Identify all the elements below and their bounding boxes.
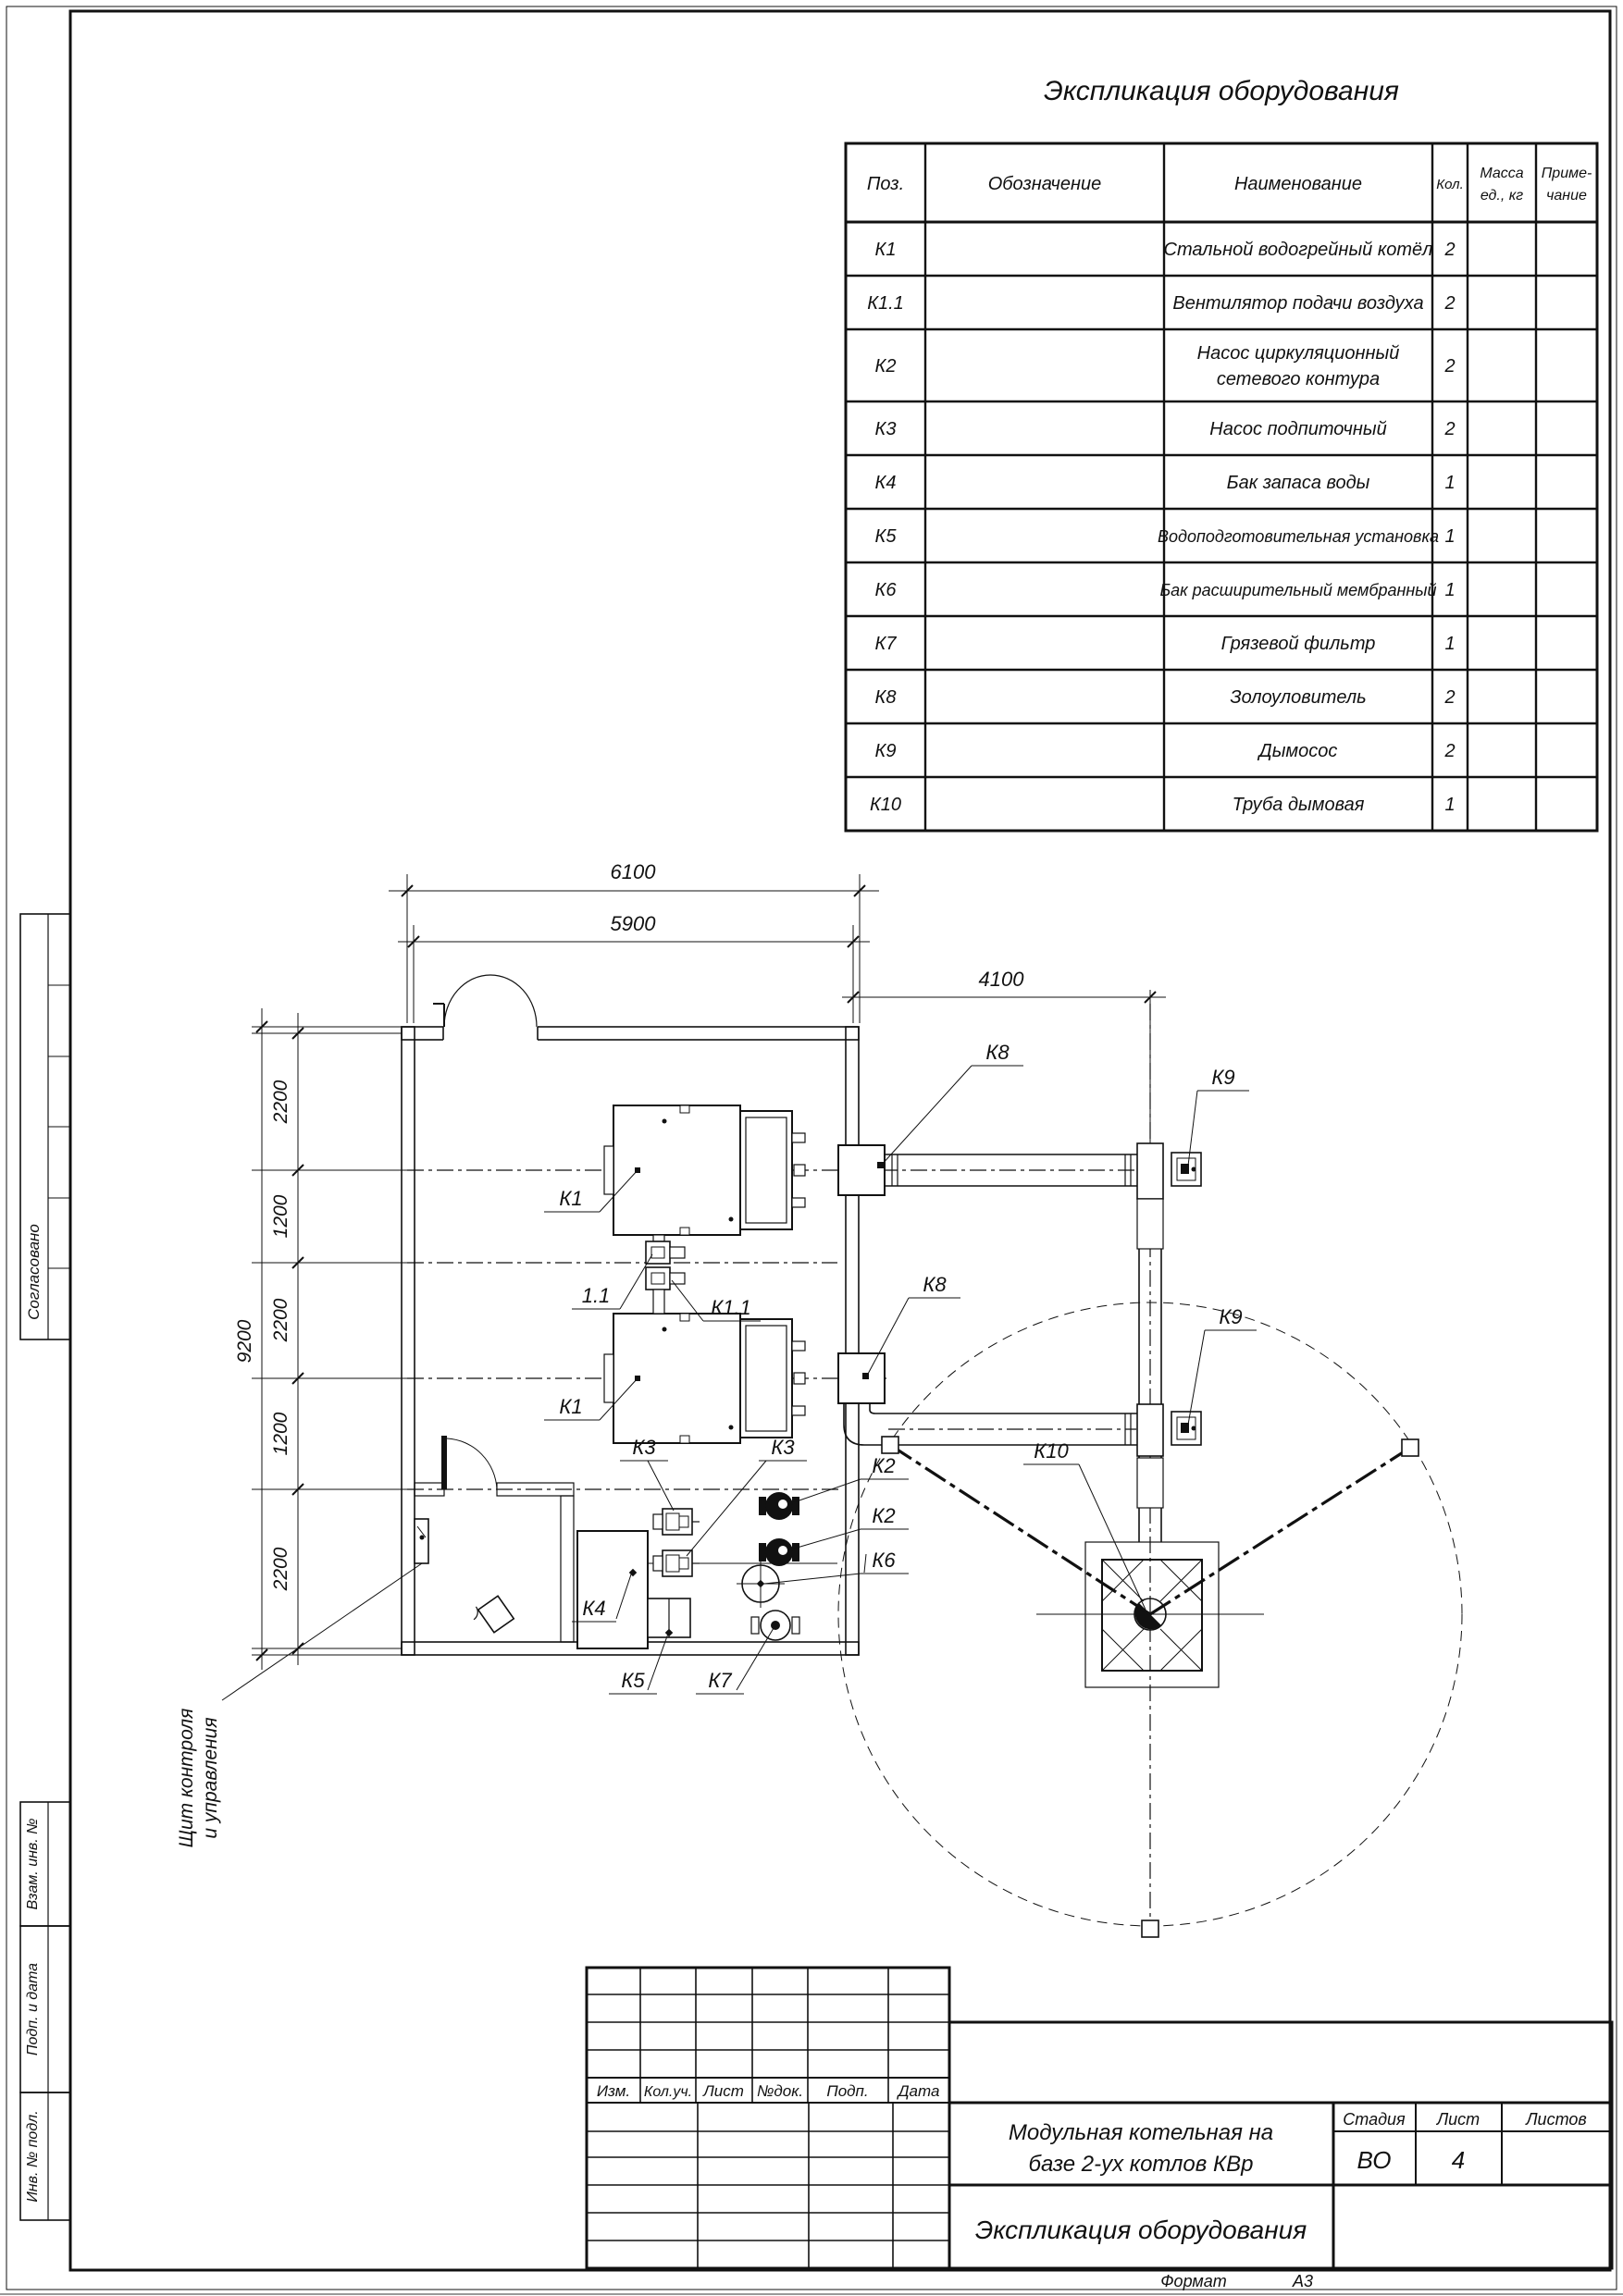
control-panel-box xyxy=(415,1519,428,1563)
row-qty: 2 xyxy=(1443,356,1455,376)
pump-k2-1 xyxy=(759,1492,799,1520)
stamp-approved-label: Согласовано xyxy=(25,1224,43,1320)
col-header-designation: Обозначение xyxy=(988,174,1102,194)
stage-label: Стадия xyxy=(1343,2110,1406,2129)
stamp-inv-orig-label: Инв. № подл. xyxy=(25,2110,41,2202)
partition-wall xyxy=(561,1496,574,1642)
guy-anchor xyxy=(1402,1439,1419,1456)
col-header-pos: Поз. xyxy=(867,174,904,194)
rev-header-koluch: Кол.уч. xyxy=(644,2084,692,2100)
tag-k11: К1.1 xyxy=(711,1296,751,1319)
tag-k9-lower: К9 xyxy=(1219,1305,1242,1328)
tag-k5: К5 xyxy=(621,1669,645,1692)
stamp-sign-date: Подп. и дата xyxy=(20,1926,70,2092)
expansion-tank-k6 xyxy=(737,1562,785,1608)
door-leaf xyxy=(441,1436,447,1489)
col-header-note-1: Приме- xyxy=(1542,166,1592,181)
ash-catcher-k8-lower xyxy=(838,1353,885,1403)
row-pos: К1 xyxy=(875,240,897,260)
door-leaf xyxy=(490,975,537,1027)
row-name: Водоподготовительная установка xyxy=(1158,527,1439,546)
row-qty: 2 xyxy=(1443,293,1455,314)
row-qty: 1 xyxy=(1444,795,1455,815)
table-row: К1 Стальной водогрейный котёл 2 xyxy=(875,240,1456,260)
row-name: Бак запаса воды xyxy=(1227,473,1370,493)
row-qty: 1 xyxy=(1444,634,1455,654)
stamp-replace-inv-label: Взам. инв. № xyxy=(25,1819,41,1910)
guy-anchor xyxy=(882,1437,898,1453)
boiler-k1-lower xyxy=(604,1314,805,1443)
table-row: К6 Бак расширительный мембранный 1 xyxy=(875,580,1456,600)
control-panel-label-1: Щит контроля xyxy=(176,1709,197,1848)
format-label: Формат xyxy=(1160,2272,1226,2290)
project-name-2: базе 2-ух котлов КВр xyxy=(1029,2152,1254,2177)
table-row: К1.1 Вентилятор подачи воздуха 2 xyxy=(867,293,1455,314)
flue-tee-upper xyxy=(1137,1143,1163,1199)
sink xyxy=(468,1593,514,1637)
tag-k8-lower: К8 xyxy=(923,1273,947,1296)
dim-row-1200a: 1200 xyxy=(270,1194,291,1238)
row-qty: 2 xyxy=(1443,419,1455,439)
stamp-approved-box: Согласовано xyxy=(20,914,70,1339)
tag-k1-lower: К1 xyxy=(559,1395,582,1418)
row-pos: К8 xyxy=(875,687,897,708)
pump-k3-1 xyxy=(653,1509,700,1535)
project-name-1: Модульная котельная на xyxy=(1009,2120,1273,2145)
col-header-qty: Кол. xyxy=(1436,177,1463,192)
rev-header-list: Лист xyxy=(702,2082,744,2100)
tag-k8-upper: К8 xyxy=(985,1041,1010,1064)
row-qty: 1 xyxy=(1444,473,1455,493)
ash-catcher-k8-upper xyxy=(838,1145,885,1195)
col-header-mass-1: Масса xyxy=(1480,166,1523,181)
row-pos: К9 xyxy=(875,741,897,761)
table-row: К5 Водоподготовительная установка 1 xyxy=(875,526,1456,547)
dim-row-2200c: 2200 xyxy=(270,1547,291,1591)
tag-k3-right: К3 xyxy=(771,1436,795,1459)
row-name: Насос циркуляционный xyxy=(1197,343,1400,364)
door-arc xyxy=(447,1438,497,1489)
row-pos: К4 xyxy=(875,473,897,493)
floor-plan: 6100 5900 4100 xyxy=(176,860,1462,1937)
tag-k4: К4 xyxy=(582,1597,605,1620)
tag-k2-upper: К2 xyxy=(872,1454,895,1477)
stamp-sign-date-label: Подп. и дата xyxy=(25,1963,41,2055)
row-qty: 2 xyxy=(1443,687,1455,708)
dim-row-2200a: 2200 xyxy=(270,1080,291,1124)
row-name: Стальной водогрейный котёл xyxy=(1164,240,1433,260)
row-pos: К10 xyxy=(870,795,901,815)
dim-5900: 5900 xyxy=(611,912,657,935)
format-value: А3 xyxy=(1292,2272,1313,2290)
rev-header-izm: Изм. xyxy=(597,2082,630,2100)
rev-header-podp: Подп. xyxy=(826,2082,868,2100)
sheets-label: Листов xyxy=(1525,2110,1587,2129)
water-tank-k4 xyxy=(577,1531,648,1648)
table-title: Экспликация оборудования xyxy=(1044,76,1399,106)
row-name: Дымосос xyxy=(1258,741,1338,761)
fan-k11-upper xyxy=(646,1235,685,1264)
dim-4100: 4100 xyxy=(979,968,1025,991)
row-pos: К6 xyxy=(875,580,898,600)
drawing-sheet: Согласовано Взам. инв. № Подп. и дата Ин… xyxy=(0,0,1623,2296)
filter-k7 xyxy=(751,1611,799,1640)
rev-header-data: Дата xyxy=(897,2082,940,2100)
fan-k11-lower xyxy=(646,1267,685,1314)
row-pos: К7 xyxy=(875,634,898,654)
drawing-canvas: Согласовано Взам. инв. № Подп. и дата Ин… xyxy=(0,0,1623,2296)
col-header-name: Наименование xyxy=(1234,174,1362,194)
row-name: Золоуловитель xyxy=(1230,687,1366,708)
stage-value: ВО xyxy=(1357,2146,1392,2174)
guy-anchor xyxy=(1142,1920,1158,1937)
dim-9200: 9200 xyxy=(234,1319,255,1363)
tag-k6: К6 xyxy=(872,1549,896,1572)
dim-row-2200b: 2200 xyxy=(270,1298,291,1342)
stamp-inv-orig: Инв. № подл. xyxy=(20,2092,70,2220)
pump-room xyxy=(577,1492,799,1648)
row-name: Труба дымовая xyxy=(1233,795,1365,815)
control-panel-leader xyxy=(222,1563,422,1700)
row-qty: 2 xyxy=(1443,240,1455,260)
tag-k9-upper: К9 xyxy=(1211,1066,1234,1089)
row-qty: 2 xyxy=(1443,741,1455,761)
rev-header-ndok: №док. xyxy=(757,2082,803,2100)
tag-k10: К10 xyxy=(1034,1439,1069,1463)
dim-left: 2200 1200 2200 1200 2200 9200 xyxy=(234,1008,407,1670)
dim-top: 6100 5900 4100 xyxy=(389,860,1166,1147)
stamp-replace-inv: Взам. инв. № xyxy=(20,1802,70,1926)
row-name-2: сетевого контура xyxy=(1217,369,1380,389)
col-header-note-2: чание xyxy=(1546,188,1587,204)
pump-k2-2 xyxy=(759,1538,799,1566)
row-name: Насос подпиточный xyxy=(1209,419,1386,439)
tag-k2-lower: К2 xyxy=(872,1504,895,1527)
tag-k7: К7 xyxy=(708,1669,732,1692)
row-pos: К2 xyxy=(875,356,897,376)
vestibule: Щит контроля и управления xyxy=(176,1519,514,1847)
dim-6100: 6100 xyxy=(611,860,657,883)
row-qty: 1 xyxy=(1444,580,1455,600)
sheet-label: Лист xyxy=(1436,2110,1480,2129)
tag-k1-upper: К1 xyxy=(559,1187,582,1210)
control-panel-label-2: и управления xyxy=(200,1717,221,1838)
row-pos: К5 xyxy=(875,526,898,547)
pump-k3-2 xyxy=(653,1550,700,1576)
row-pos: К1.1 xyxy=(867,293,904,314)
sheet-value: 4 xyxy=(1452,2146,1465,2174)
tag-k3-left: К3 xyxy=(632,1436,656,1459)
title-block: Изм. Кол.уч. Лист №док. Подп. Дата Модул… xyxy=(587,1968,1612,2290)
table-row: К10 Труба дымовая 1 xyxy=(870,795,1456,815)
row-name: Бак расширительный мембранный xyxy=(1159,581,1436,599)
row-name: Грязевой фильтр xyxy=(1221,634,1376,654)
tag-fan-11: 1.1 xyxy=(582,1284,611,1307)
flue-system xyxy=(838,1143,1201,1542)
boiler-k1-upper xyxy=(604,1105,805,1235)
row-qty: 1 xyxy=(1444,526,1455,547)
dim-row-1200b: 1200 xyxy=(270,1412,291,1455)
equipment-table: Экспликация оборудования Поз. Обозначени… xyxy=(846,76,1597,831)
row-pos: К3 xyxy=(875,419,897,439)
doc-title: Экспликация оборудования xyxy=(975,2216,1307,2244)
door-leaf xyxy=(444,975,490,1027)
row-name: Вентилятор подачи воздуха xyxy=(1172,293,1423,314)
margin-stamps: Согласовано Взам. инв. № Подп. и дата Ин… xyxy=(20,914,70,2220)
flue-tee-lower xyxy=(1137,1404,1163,1456)
col-header-mass-2: ед., кг xyxy=(1481,188,1523,204)
